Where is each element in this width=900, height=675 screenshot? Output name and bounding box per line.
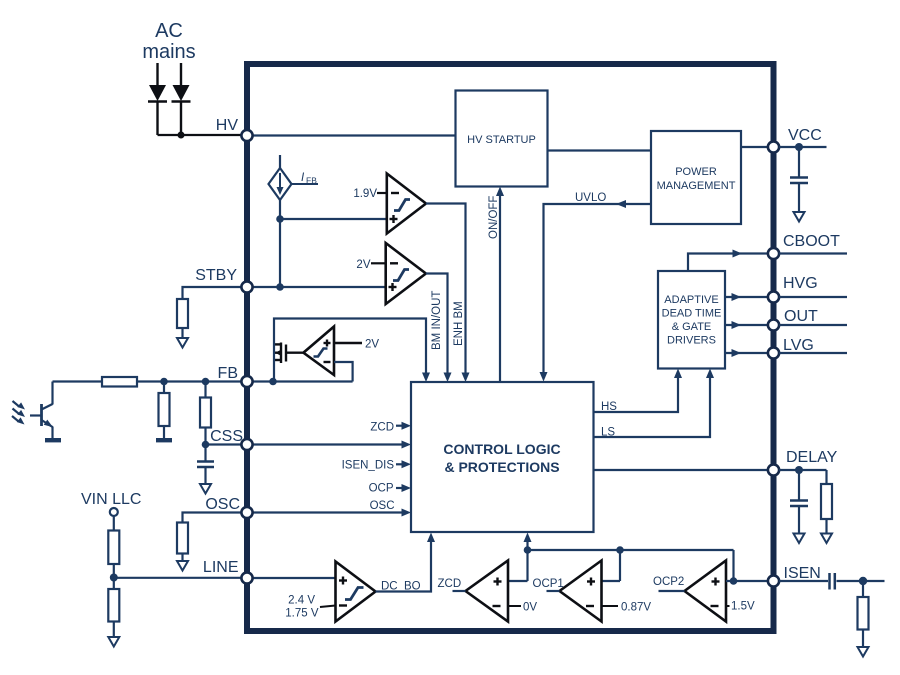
svg-text:CSS: CSS xyxy=(210,428,243,445)
svg-text:& GATE: & GATE xyxy=(672,321,712,333)
svg-text:1.75 V: 1.75 V xyxy=(285,608,319,620)
svg-text:OCP: OCP xyxy=(369,483,394,495)
svg-text:LINE: LINE xyxy=(203,559,239,576)
svg-text:mains: mains xyxy=(142,41,195,63)
svg-text:ISEN: ISEN xyxy=(784,565,821,582)
svg-text:DEAD TIME: DEAD TIME xyxy=(662,308,722,320)
svg-text:POWER: POWER xyxy=(675,166,717,178)
svg-text:CBOOT: CBOOT xyxy=(783,233,840,250)
svg-text:ADAPTIVE: ADAPTIVE xyxy=(664,294,718,306)
svg-text:2V: 2V xyxy=(365,339,379,351)
svg-text:1.9V: 1.9V xyxy=(353,188,377,200)
svg-text:MANAGEMENT: MANAGEMENT xyxy=(657,180,736,192)
svg-text:1.5V: 1.5V xyxy=(731,601,755,613)
svg-text:0.87V: 0.87V xyxy=(621,602,651,614)
svg-text:OSC: OSC xyxy=(370,500,395,512)
svg-text:VCC: VCC xyxy=(788,127,822,144)
svg-text:VIN LLC: VIN LLC xyxy=(81,491,141,508)
svg-text:LVG: LVG xyxy=(783,337,814,354)
svg-text:STBY: STBY xyxy=(195,267,237,284)
svg-text:OCP2: OCP2 xyxy=(653,576,684,588)
svg-text:OCP1: OCP1 xyxy=(533,578,564,590)
svg-text:FB: FB xyxy=(306,176,317,186)
svg-text:DC_BO: DC_BO xyxy=(381,581,421,593)
svg-text:& PROTECTIONS: & PROTECTIONS xyxy=(444,459,559,475)
svg-text:OSC: OSC xyxy=(205,496,240,513)
svg-text:AC: AC xyxy=(155,20,183,42)
svg-text:HV STARTUP: HV STARTUP xyxy=(467,134,536,146)
svg-text:HV: HV xyxy=(216,117,239,134)
svg-text:ENH BM: ENH BM xyxy=(453,301,465,346)
svg-text:0V: 0V xyxy=(523,602,537,614)
svg-text:DELAY: DELAY xyxy=(786,449,838,466)
svg-text:FB: FB xyxy=(218,365,238,382)
svg-text:HS: HS xyxy=(601,401,617,413)
svg-text:LS: LS xyxy=(601,427,615,439)
svg-text:OUT: OUT xyxy=(784,308,818,325)
svg-text:ON/OFF: ON/OFF xyxy=(488,196,500,239)
svg-text:ZCD: ZCD xyxy=(438,578,462,590)
svg-text:HVG: HVG xyxy=(783,275,818,292)
svg-text:2V: 2V xyxy=(356,259,370,271)
svg-text:CONTROL LOGIC: CONTROL LOGIC xyxy=(443,441,560,457)
svg-text:DRIVERS: DRIVERS xyxy=(667,335,716,347)
svg-text:UVLO: UVLO xyxy=(575,192,606,204)
svg-text:BM IN/OUT: BM IN/OUT xyxy=(431,291,443,350)
svg-text:ISEN_DIS: ISEN_DIS xyxy=(342,460,395,472)
svg-text:2.4 V: 2.4 V xyxy=(288,595,315,607)
svg-text:ZCD: ZCD xyxy=(370,422,394,434)
